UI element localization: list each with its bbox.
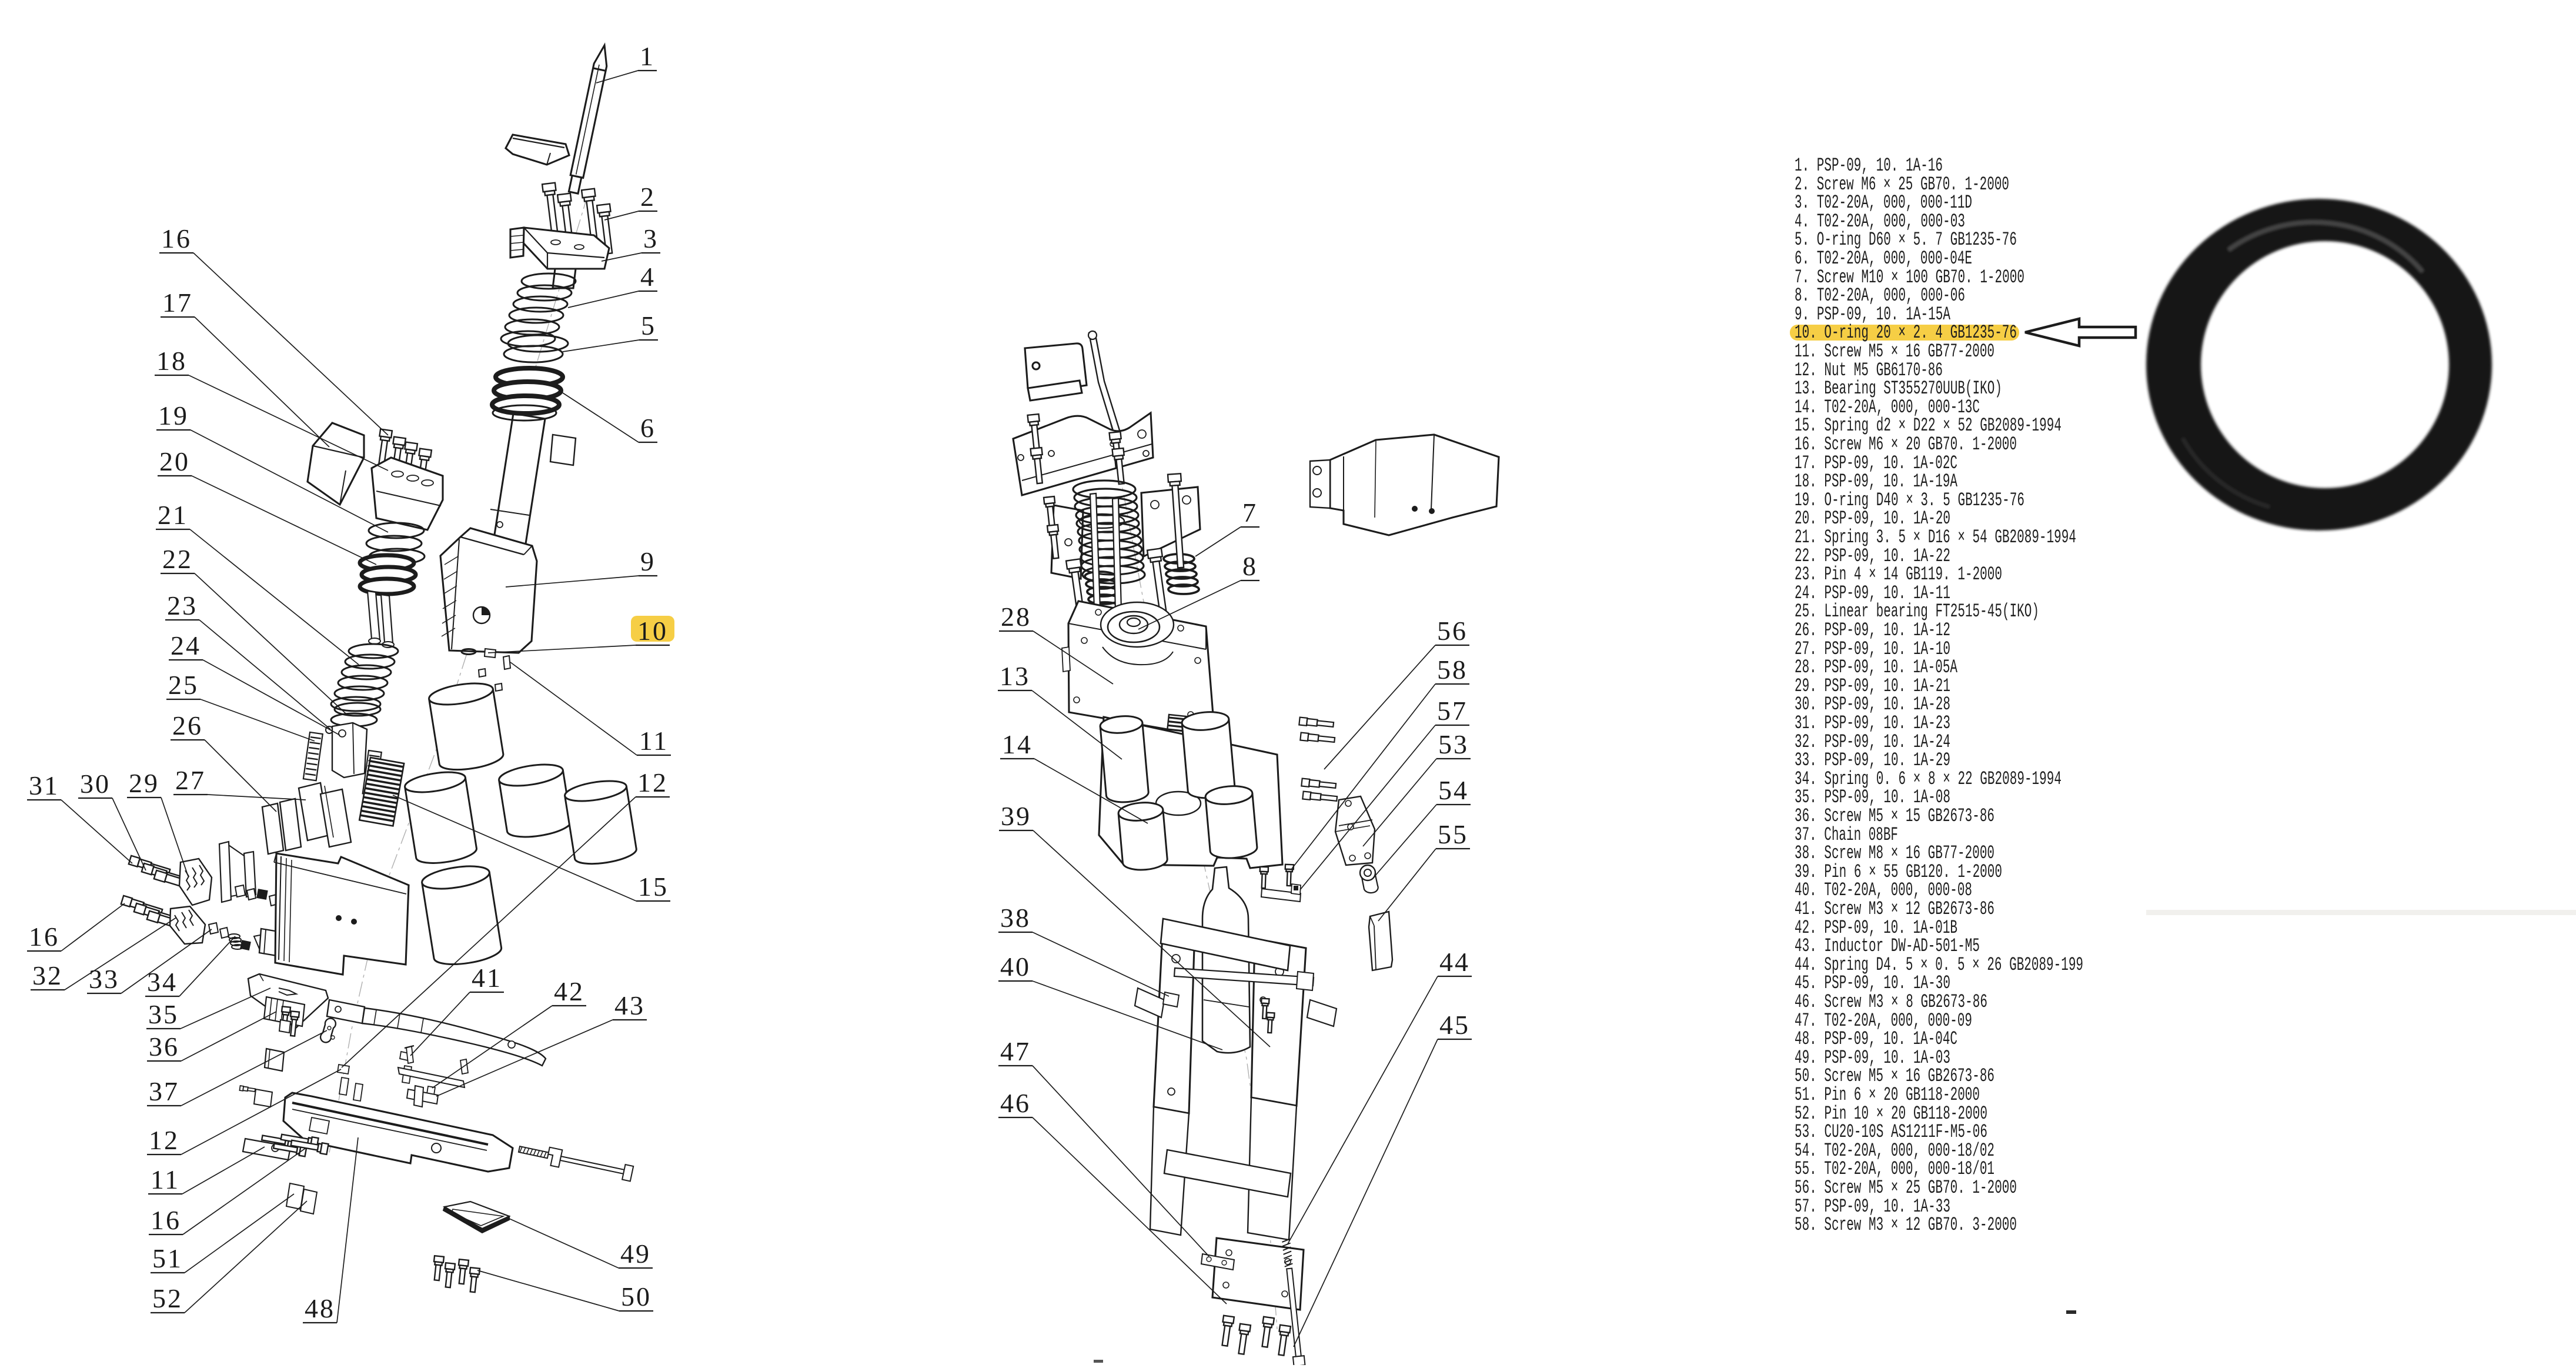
svg-text:54: 54 <box>1438 775 1469 805</box>
svg-text:1: 1 <box>640 41 655 71</box>
svg-text:29: 29 <box>129 768 159 798</box>
svg-text:19: 19 <box>158 401 189 431</box>
svg-text:20: 20 <box>159 446 190 476</box>
svg-text:22: 22 <box>162 544 193 574</box>
svg-text:31: 31 <box>29 770 59 800</box>
svg-text:4: 4 <box>640 262 656 292</box>
svg-text:26: 26 <box>172 710 203 740</box>
svg-text:23: 23 <box>167 590 198 620</box>
svg-text:15: 15 <box>638 872 669 902</box>
svg-text:24: 24 <box>171 630 201 660</box>
svg-text:34: 34 <box>147 967 178 997</box>
svg-text:16: 16 <box>161 223 192 253</box>
svg-text:8: 8 <box>1242 551 1258 581</box>
svg-text:38: 38 <box>1000 903 1031 933</box>
svg-text:35: 35 <box>148 999 179 1029</box>
svg-text:16: 16 <box>151 1205 181 1235</box>
svg-text:2: 2 <box>640 182 656 212</box>
svg-text:39: 39 <box>1001 801 1031 831</box>
svg-text:16: 16 <box>29 922 59 952</box>
svg-text:32: 32 <box>32 960 63 990</box>
svg-text:33: 33 <box>89 964 119 994</box>
svg-text:46: 46 <box>1000 1088 1031 1118</box>
svg-text:57: 57 <box>1437 696 1468 726</box>
svg-text:58. Screw M3 × 12 GB70. 3-2000: 58. Screw M3 × 12 GB70. 3-2000 <box>1795 1214 2017 1236</box>
svg-text:58: 58 <box>1437 655 1468 685</box>
svg-text:13: 13 <box>1000 661 1030 691</box>
svg-text:3: 3 <box>643 223 659 253</box>
svg-text:47: 47 <box>1000 1036 1031 1066</box>
svg-text:17: 17 <box>162 288 193 318</box>
svg-text:14: 14 <box>1002 729 1033 759</box>
svg-text:30: 30 <box>80 769 111 799</box>
svg-text:25: 25 <box>168 670 199 700</box>
svg-text:48: 48 <box>305 1293 335 1323</box>
svg-text:7: 7 <box>1242 498 1258 528</box>
svg-text:18: 18 <box>156 346 187 376</box>
svg-text:11: 11 <box>151 1165 180 1195</box>
svg-text:10: 10 <box>637 616 668 646</box>
svg-text:53: 53 <box>1438 729 1469 759</box>
svg-text:36: 36 <box>149 1032 179 1062</box>
svg-text:41: 41 <box>472 963 502 993</box>
svg-text:45: 45 <box>1439 1010 1470 1040</box>
svg-text:21: 21 <box>158 500 188 530</box>
svg-text:50: 50 <box>621 1282 651 1312</box>
svg-text:49: 49 <box>620 1239 651 1269</box>
svg-text:42: 42 <box>554 976 584 1006</box>
svg-text:9: 9 <box>640 546 656 576</box>
svg-text:27: 27 <box>175 765 206 795</box>
svg-text:55: 55 <box>1438 819 1468 849</box>
svg-text:51: 51 <box>152 1243 183 1273</box>
svg-text:28: 28 <box>1001 602 1031 632</box>
svg-text:5: 5 <box>641 311 656 341</box>
svg-text:6: 6 <box>640 413 656 443</box>
svg-text:43: 43 <box>614 990 645 1020</box>
svg-text:12: 12 <box>637 768 668 798</box>
svg-text:37: 37 <box>149 1076 179 1106</box>
svg-text:56: 56 <box>1437 616 1468 646</box>
svg-text:40: 40 <box>1000 952 1031 982</box>
svg-text:52: 52 <box>152 1283 183 1313</box>
svg-text:44: 44 <box>1439 947 1470 977</box>
svg-text:12: 12 <box>149 1125 179 1155</box>
svg-text:11: 11 <box>639 726 669 756</box>
